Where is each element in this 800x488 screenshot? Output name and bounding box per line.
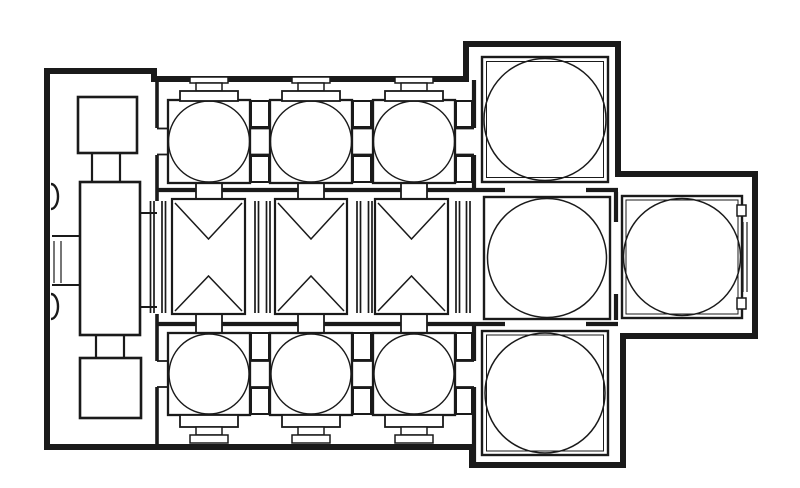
north-aisle-pier-a1 xyxy=(251,101,269,127)
south-portal-2-neck xyxy=(298,427,324,435)
south-portal-2-lintel xyxy=(292,435,330,443)
south-portal-1-lintel xyxy=(190,435,228,443)
north-portal-2-neck xyxy=(298,83,324,91)
chancel-room xyxy=(622,196,742,318)
narthex-core-pier xyxy=(80,182,140,335)
south-aisle-pier-c1 xyxy=(456,333,472,360)
north-aisle-pier-b2 xyxy=(353,156,371,182)
chancel-east-bump-lower xyxy=(737,298,746,309)
south-portal-3-lintel xyxy=(395,435,433,443)
church-floor-plan xyxy=(0,0,800,488)
west-wall-niche-lower xyxy=(51,294,58,319)
nave-bay-3 xyxy=(375,199,448,314)
south-portal-2-block xyxy=(282,415,340,427)
north-portal-1-block xyxy=(180,91,238,101)
narthex-south-pier xyxy=(80,358,141,418)
page xyxy=(0,0,800,488)
chancel-east-bump-upper xyxy=(737,205,746,216)
north-portal-2-lintel xyxy=(292,77,330,83)
north-portal-3-neck xyxy=(401,83,427,91)
north-chapel-room xyxy=(482,57,608,182)
narthex-north-pier xyxy=(78,97,137,153)
south-portal-1-neck xyxy=(196,427,222,435)
north-portal-1-neck xyxy=(196,83,222,91)
west-wall-niche-upper xyxy=(51,184,58,209)
south-aisle-pier-a1 xyxy=(251,333,269,360)
nave-bay-2 xyxy=(275,199,347,314)
south-aisle-pier-a2 xyxy=(251,388,269,414)
nave-bay-1 xyxy=(172,199,245,314)
north-portal-1-lintel xyxy=(190,77,228,83)
north-aisle-pier-a2 xyxy=(251,156,269,182)
floor-plan-svg xyxy=(0,0,800,488)
south-aisle-pier-b1 xyxy=(353,333,371,360)
north-portal-3-lintel xyxy=(395,77,433,83)
north-portal-2-block xyxy=(282,91,340,101)
north-aisle-pier-b1 xyxy=(353,101,371,127)
north-aisle-pier-c2 xyxy=(456,156,472,182)
north-aisle-pier-c1 xyxy=(456,101,472,127)
south-aisle-pier-c2 xyxy=(456,388,472,414)
north-portal-3-block xyxy=(385,91,443,101)
south-portal-3-block xyxy=(385,415,443,427)
south-aisle-pier-b2 xyxy=(353,388,371,414)
crossing-room xyxy=(484,197,610,319)
south-portal-1-block xyxy=(180,415,238,427)
south-portal-3-neck xyxy=(401,427,427,435)
south-chapel-room xyxy=(482,331,608,455)
